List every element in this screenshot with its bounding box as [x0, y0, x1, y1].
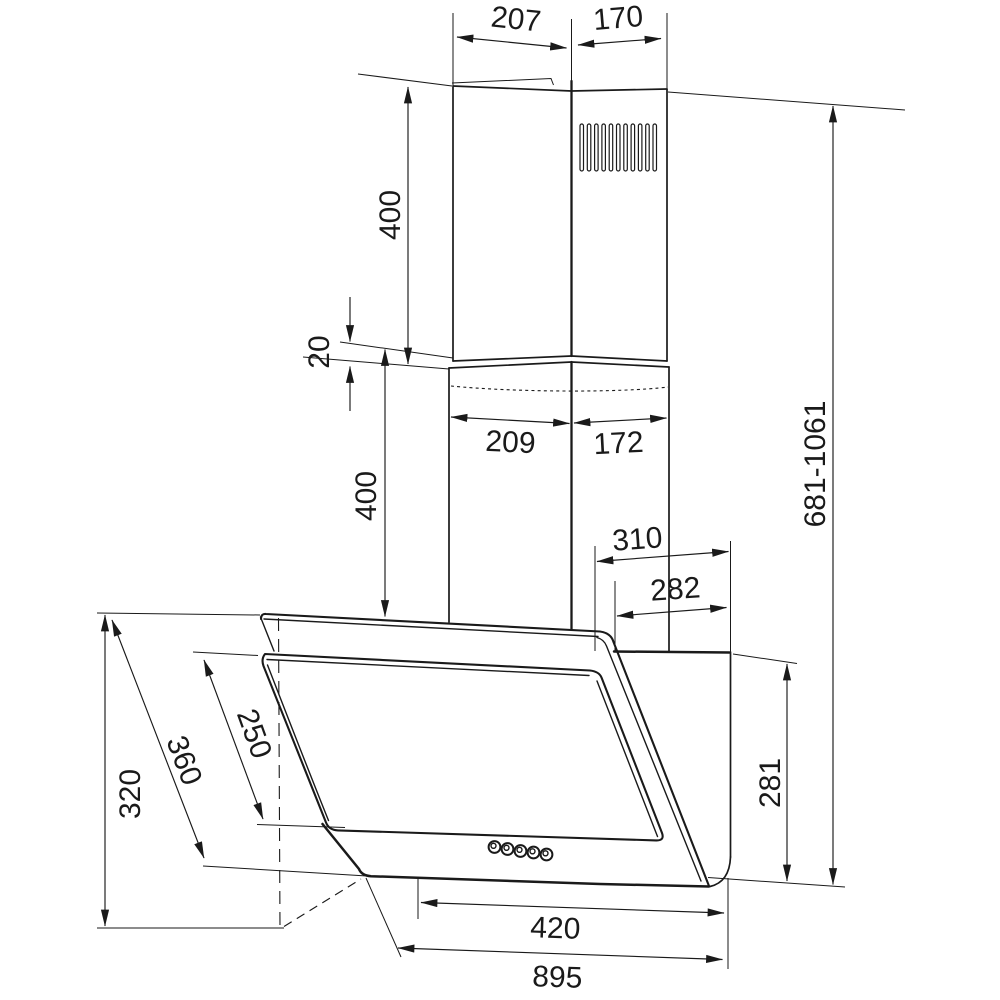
top-glass-left-edge: [261, 617, 275, 651]
dim-label: 681-1061: [799, 401, 832, 528]
ext-281-top: [733, 654, 797, 664]
dim-hood-body-depth: 282: [617, 571, 727, 616]
ext-895-left-slant: [366, 878, 401, 957]
chimney-upper-section: [452, 79, 667, 362]
dim-overall-height-range: 681-1061: [799, 106, 833, 885]
hood-top-back-edge: [614, 652, 730, 653]
front-glass-left-inner-line: [268, 665, 329, 821]
front-glass-outline: [263, 654, 663, 840]
vent-slat: [653, 124, 657, 171]
hidden-back-vertical-line: [279, 618, 281, 930]
dim-label: 360: [159, 731, 208, 790]
dim-chimney-bottom-side-depth: 172: [574, 418, 667, 461]
hood-right-bottom-corner: [710, 857, 731, 887]
reference-lines: [358, 74, 905, 110]
upper-chimney-bottom-front-edge: [453, 356, 572, 361]
dim-line: [421, 903, 724, 914]
hidden-bottom-diagonal-line: [284, 879, 361, 927]
ext-hood-bottom-slant: [203, 866, 367, 876]
upper-chimney-top-front-edge: [453, 86, 572, 91]
dim-chimney-overlap: 20: [303, 297, 350, 411]
dim-hood-top-depth: 310: [597, 521, 729, 561]
vent-slat: [617, 124, 621, 171]
dim-label: 209: [485, 425, 537, 461]
cooker-hood-dimension-drawing: 207 170 400 20 400 209 172 681-1: [0, 0, 1000, 1000]
upper-chimney-top-flange: [452, 79, 554, 86]
ext-hood-top-left: [97, 613, 260, 615]
control-knob: [541, 849, 553, 861]
control-knob: [528, 847, 540, 859]
dim-label: 250: [230, 705, 278, 763]
dim-hood-rear-height: 281: [754, 664, 787, 881]
dim-bottom-opening-width: 420: [421, 903, 724, 946]
dim-line: [574, 418, 667, 423]
dim-overall-width: 895: [398, 948, 723, 995]
control-buttons: [489, 841, 553, 860]
vent-slat: [631, 124, 635, 171]
control-knob: [515, 845, 527, 857]
dim-label: 310: [611, 521, 663, 557]
ext-upper-chimney-bottom: [340, 342, 453, 358]
lower-chimney-top-right-edge: [572, 362, 670, 367]
dim-label: 400: [374, 190, 407, 240]
dim-chimney-top-front-width: 207: [457, 1, 567, 48]
dim-label: 207: [489, 1, 542, 39]
dim-label: 281: [754, 758, 787, 808]
vent-slat: [595, 124, 599, 171]
dim-label: 320: [114, 769, 147, 819]
dim-label: 420: [530, 911, 581, 946]
dim-label: 895: [532, 960, 583, 995]
telescopic-overlap-hidden-line: [451, 386, 668, 391]
dim-label: 170: [592, 0, 645, 37]
control-knob: [502, 843, 514, 855]
dim-front-glass-slant-length: 250: [204, 660, 278, 819]
vent-slat: [587, 124, 591, 171]
vent-slat: [624, 124, 628, 171]
dim-line: [451, 417, 570, 424]
dim-chimney-top-side-depth: 170: [578, 0, 661, 45]
chimney-lower-section: [449, 362, 669, 651]
dimensions: 207 170 400 20 400 209 172 681-1: [105, 0, 833, 995]
vent-slat: [646, 124, 650, 171]
dim-glass-panel-slant-length: 360: [112, 620, 208, 858]
dim-label: 20: [303, 335, 336, 368]
dim-chimney-bottom-front-width: 209: [451, 417, 570, 460]
dim-label: 172: [593, 426, 645, 462]
dim-hood-front-height: 320: [105, 615, 147, 926]
hood-body: [261, 614, 731, 887]
dim-label: 400: [350, 471, 383, 521]
top-right-reference-line: [668, 92, 905, 110]
upper-chimney-top-right-edge: [572, 89, 668, 91]
control-knob: [489, 841, 501, 853]
dim-line: [617, 608, 727, 617]
dim-line: [398, 948, 723, 960]
lower-chimney-top-front-edge: [449, 362, 572, 368]
top-glass-right-inner-edge: [597, 638, 701, 882]
dim-label: 282: [649, 571, 701, 607]
vent-slat: [638, 124, 642, 171]
ext-front-glass-bottom: [257, 825, 345, 828]
extension-lines: [97, 13, 845, 969]
vent-slat: [580, 124, 584, 171]
front-glass-right-inner-line: [597, 681, 658, 837]
dim-line: [457, 37, 567, 48]
dim-lower-chimney-height: 400: [350, 350, 385, 617]
technical-drawing-page: 207 170 400 20 400 209 172 681-1: [0, 0, 1000, 1000]
top-glass-outer-edge: [261, 614, 709, 886]
vent-slat: [602, 124, 606, 171]
top-left-reference-line: [358, 74, 452, 86]
ext-front-glass-top: [193, 652, 258, 656]
dim-line: [578, 39, 661, 46]
upper-chimney-bottom-right-edge: [572, 356, 668, 361]
dim-upper-chimney-height: 400: [374, 87, 408, 364]
ext-hood-bottom-right: [708, 878, 845, 888]
vent-grille: [580, 124, 657, 171]
vent-slat: [609, 124, 613, 171]
